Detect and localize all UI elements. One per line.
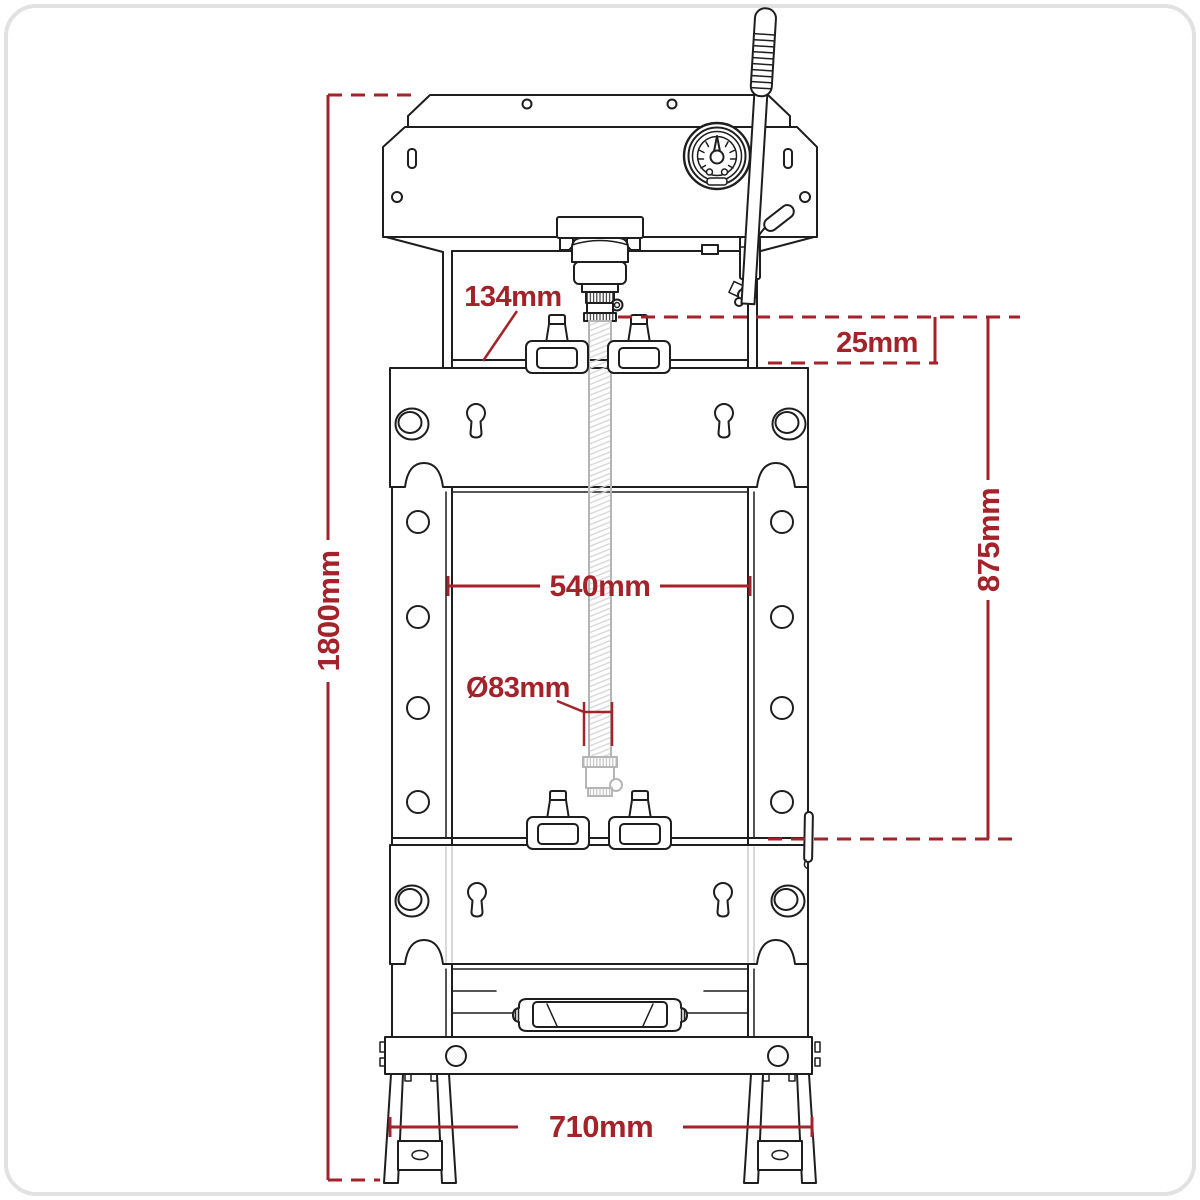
- dimension-label: 134mm: [464, 281, 561, 313]
- dimension-label: 25mm: [836, 327, 918, 359]
- press-technical-diagram: 1800mm 134mm 25mm 540mm Ø83mm 875mm 710m…: [0, 0, 1200, 1200]
- dimension-label: 710mm: [549, 1109, 653, 1144]
- bolster-handle: [804, 812, 813, 869]
- product-diagram-card: 1800mm 134mm 25mm 540mm Ø83mm 875mm 710m…: [0, 0, 1200, 1200]
- dimension-label: 540mm: [550, 570, 651, 603]
- bolster-pin-knob: [773, 409, 806, 440]
- base-assembly: [380, 1037, 820, 1074]
- dimension-label: Ø83mm: [466, 672, 570, 704]
- bolster-pin-knob: [396, 886, 429, 917]
- bolster-pin-knob: [396, 409, 429, 440]
- dimension-label: 875mm: [971, 488, 1006, 592]
- bolster-pin-knob: [772, 886, 805, 917]
- dimension-label: 1800mm: [311, 550, 346, 671]
- pressure-gauge-icon: [684, 123, 750, 189]
- lower-bolster: [390, 838, 808, 969]
